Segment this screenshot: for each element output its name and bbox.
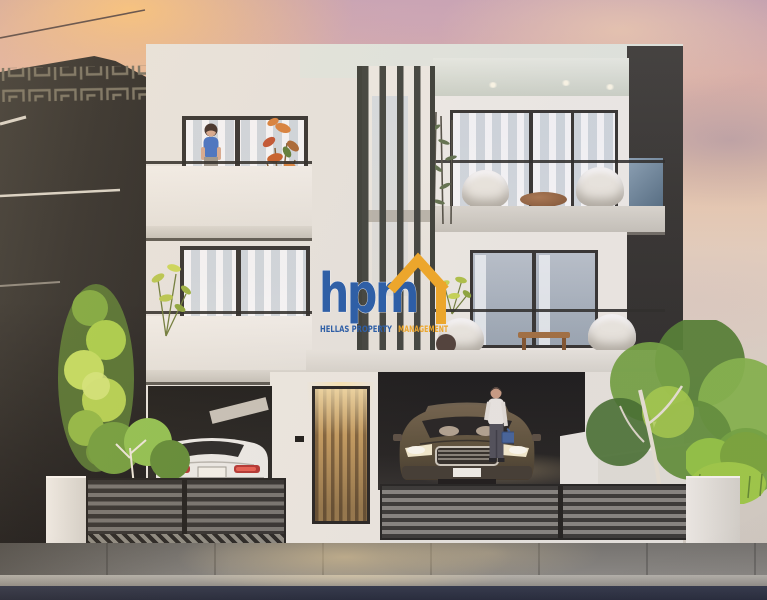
street-asphalt <box>0 586 767 600</box>
round-side-table <box>520 192 567 207</box>
left-unit-middle-window <box>180 246 310 326</box>
top-balcony-glass-rail <box>433 160 665 163</box>
power-line <box>0 10 145 38</box>
top-balcony-ceiling <box>433 58 629 96</box>
door-lighting <box>315 389 367 521</box>
left-slat-gate <box>86 478 286 548</box>
logo-house-wall <box>436 282 446 324</box>
doorbell-panel <box>295 436 304 442</box>
man-with-briefcase <box>480 386 514 470</box>
sidewalk <box>0 543 767 575</box>
gold-sedan-car <box>392 392 542 486</box>
tagline-accent: MANAGEMENT <box>398 325 449 335</box>
hpm-watermark-logo: hpm HELLAS PROPERTY MANAGEMENT <box>318 248 452 340</box>
armchair-left <box>462 170 509 208</box>
left-gate-pillar <box>46 476 86 552</box>
wooden-entrance-door <box>312 386 370 524</box>
rendering-photo: hpm HELLAS PROPERTY MANAGEMENT <box>0 0 767 600</box>
recessed-light <box>561 80 571 86</box>
top-balcony-rail <box>146 161 312 164</box>
middle-balcony-glass-rail <box>433 309 665 312</box>
top-balcony-slab <box>146 226 312 241</box>
top-balcony-parapet <box>146 166 312 228</box>
logo-tagline: HELLAS PROPERTY MANAGEMENT <box>320 325 449 335</box>
column-window-glimpse <box>627 158 663 206</box>
armchair-right <box>576 167 624 207</box>
fence-post <box>558 486 563 538</box>
right-fence-pillar <box>686 476 740 550</box>
right-slat-fence <box>380 484 688 540</box>
curb <box>0 575 767 586</box>
recessed-light <box>488 82 498 88</box>
top-balcony-floor-slab <box>433 206 665 235</box>
tagline-primary: HELLAS PROPERTY <box>320 325 392 335</box>
yellow-green-plant <box>146 250 198 338</box>
recessed-light <box>605 84 615 90</box>
